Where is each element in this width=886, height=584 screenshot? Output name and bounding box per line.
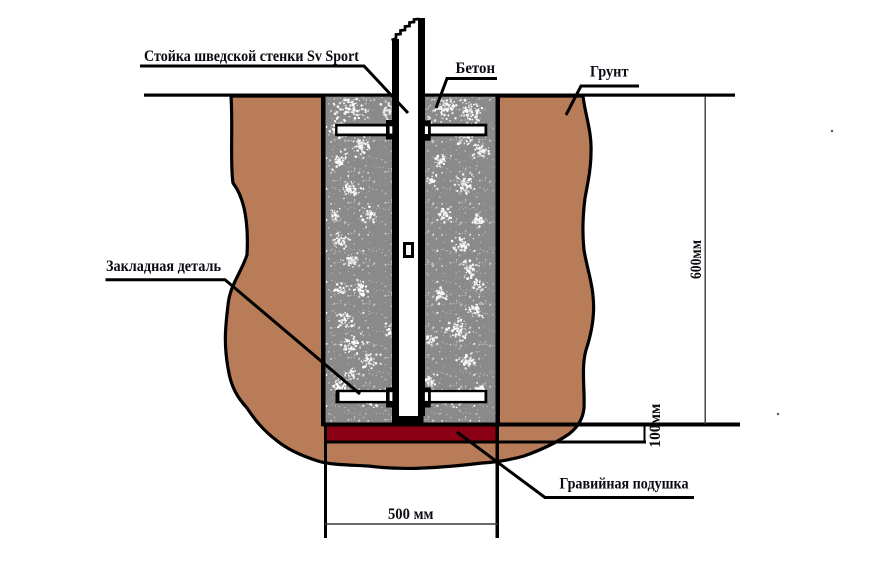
svg-text:Грунт: Грунт [590, 64, 629, 81]
svg-text:100мм: 100мм [647, 403, 664, 447]
svg-text:500 мм: 500 мм [388, 506, 434, 523]
svg-text:Гравийная подушка: Гравийная подушка [560, 476, 689, 493]
svg-text:600мм: 600мм [688, 240, 705, 279]
svg-text:Стойка шведской стенки Sv Spor: Стойка шведской стенки Sv Sport [144, 48, 360, 65]
svg-text:Закладная деталь: Закладная деталь [106, 258, 221, 275]
svg-text:Бетон: Бетон [456, 60, 496, 77]
